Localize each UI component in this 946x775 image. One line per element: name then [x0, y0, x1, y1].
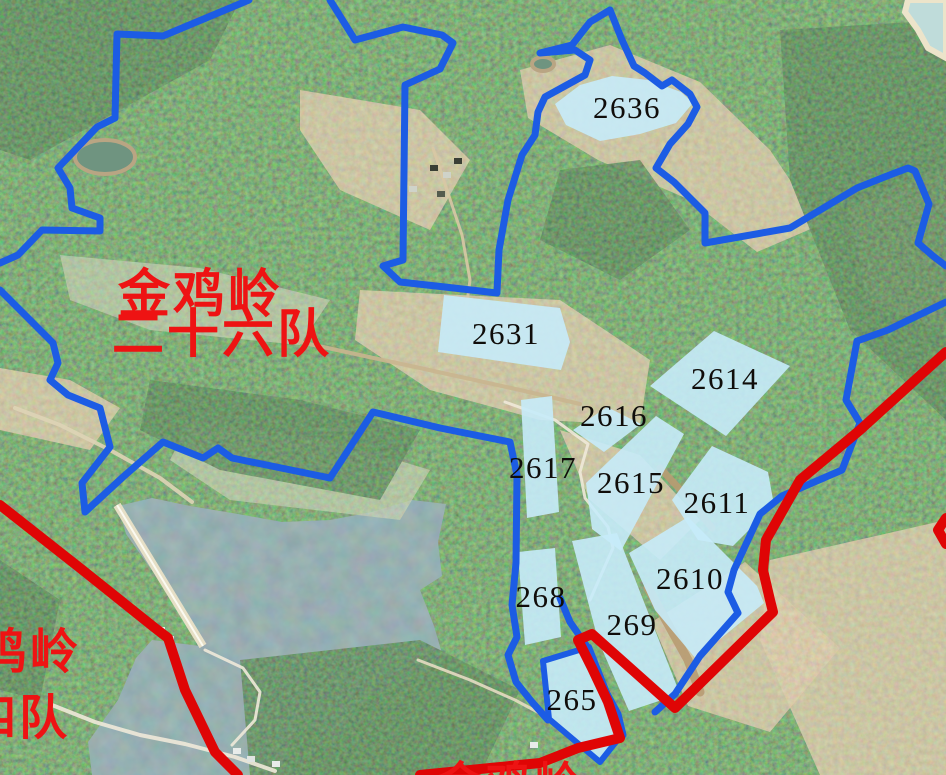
building [272, 761, 280, 767]
parcel-label-265: 265 [547, 682, 598, 717]
parcel-label-2611: 2611 [684, 485, 751, 520]
parcel-label-269: 269 [607, 607, 658, 642]
region-label-left-edge-line1: 金鸡岭 [0, 624, 81, 680]
building [409, 186, 417, 192]
parcel-label-2636: 2636 [593, 90, 661, 125]
parcel-label-2617: 2617 [509, 450, 577, 485]
parcel-label-2614: 2614 [691, 361, 759, 396]
parcel-label-2616: 2616 [580, 398, 648, 433]
building [437, 191, 445, 197]
building [247, 756, 255, 762]
parcel-label-2610: 2610 [656, 561, 724, 596]
region-label-bottom-edge: 金鸡岭 [436, 757, 584, 775]
building [454, 158, 462, 164]
building [233, 748, 241, 754]
region-label-left-edge-line2: 四队 [0, 690, 70, 746]
parcel-label-2631: 2631 [472, 316, 540, 351]
building [443, 172, 451, 178]
parcel-label-2615: 2615 [597, 465, 665, 500]
region-label-jinjiling-line2: 二十六队 [112, 304, 332, 365]
parcel-label-268: 268 [516, 579, 567, 614]
satellite-map-canvas[interactable]: 2636263126162617261526142611261026926826… [0, 0, 946, 775]
pond [532, 57, 554, 71]
building [530, 742, 538, 748]
map-viewport: 2636263126162617261526142611261026926826… [0, 0, 946, 775]
building [430, 165, 438, 171]
